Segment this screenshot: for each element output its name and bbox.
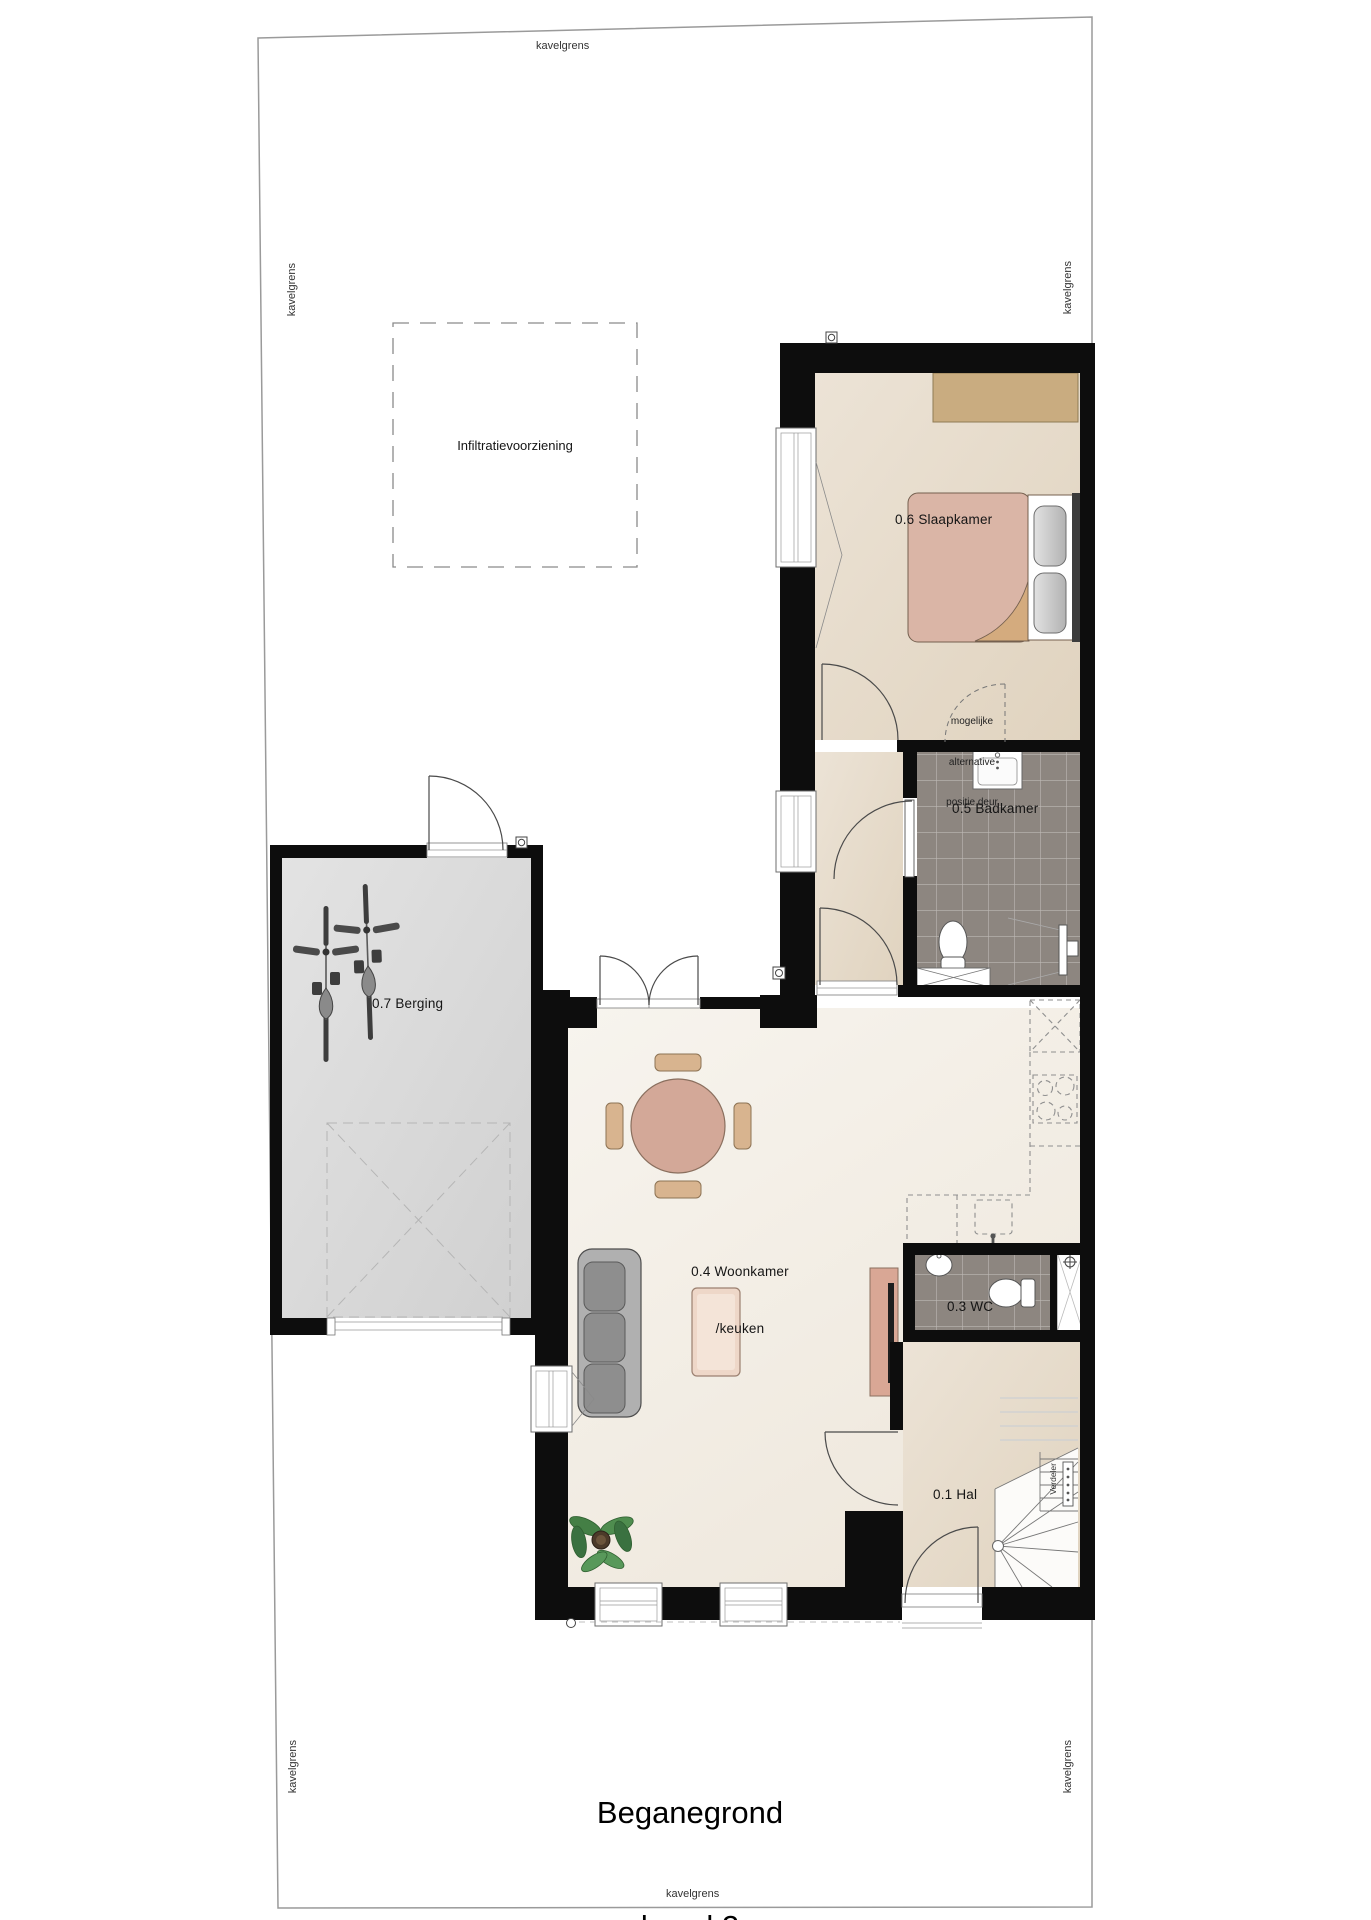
- rainwater-pipe-icon: [516, 837, 527, 848]
- living-window-west: [531, 1366, 572, 1432]
- sofa: [578, 1249, 641, 1417]
- dining-chair: [734, 1103, 751, 1149]
- boundary-label-right-bottom: kavelgrens: [1062, 1740, 1074, 1793]
- bedroom-window: [776, 428, 816, 567]
- living-window-south-1: [595, 1583, 662, 1626]
- alt-door-note-line3: positie deur: [922, 796, 1022, 810]
- alt-door-note-line1: mogelijke: [922, 715, 1022, 729]
- boundary-label-left-top: kavelgrens: [286, 263, 298, 316]
- floorplan-drawing: [0, 0, 1371, 1920]
- room-label-living-line1: 0.4 Woonkamer: [640, 1262, 840, 1281]
- corridor-floor: [815, 752, 903, 985]
- boundary-label-right-top: kavelgrens: [1062, 261, 1074, 314]
- dining-table: [631, 1079, 725, 1173]
- corridor-window: [776, 791, 816, 872]
- front-door-sill: [902, 1594, 982, 1607]
- bathroom-radiator: [917, 968, 990, 987]
- rainwater-pipe-icon: [826, 332, 837, 343]
- heating-manifold-icon: [1063, 1462, 1073, 1506]
- rainwater-pipe-icon: [567, 1619, 576, 1628]
- living-window-south-2: [720, 1583, 787, 1626]
- rainwater-pipe-icon: [773, 967, 785, 979]
- boundary-label-top: kavelgrens: [536, 40, 589, 52]
- wc-toilet: [989, 1279, 1023, 1307]
- patio-double-doors: [600, 956, 698, 1005]
- alt-door-note: mogelijke alternative positie deur: [922, 688, 1022, 837]
- room-label-bedroom: 0.6 Slaapkamer: [895, 512, 992, 527]
- floorplan-sheet: kavelgrens kavelgrens kavelgrens kavelgr…: [0, 0, 1371, 1920]
- sheet-title: Beganegrond kavel 2: [515, 1718, 865, 1920]
- dining-chair: [606, 1103, 623, 1149]
- storage-door: [429, 776, 503, 850]
- room-label-hall: 0.1 Hal: [933, 1487, 977, 1502]
- stair-newel: [993, 1541, 1004, 1552]
- storage-floor: [282, 858, 531, 1318]
- room-label-living-line2: /keuken: [640, 1319, 840, 1338]
- wardrobe: [933, 373, 1078, 422]
- duct-shaft: [1057, 1252, 1083, 1332]
- boundary-label-left-bottom: kavelgrens: [287, 1740, 299, 1793]
- manifold-label: Verdeler: [1048, 1463, 1058, 1495]
- alt-door-note-line2: alternative: [922, 756, 1022, 770]
- wc-sink: [926, 1254, 952, 1276]
- room-label-storage: 0.7 Berging: [372, 996, 443, 1011]
- storage-garage-opening: [327, 1318, 510, 1335]
- sheet-title-line2: kavel 2: [515, 1908, 865, 1920]
- sheet-title-line1: Beganegrond: [515, 1794, 865, 1832]
- room-label-wc: 0.3 WC: [947, 1299, 993, 1314]
- dining-chair: [655, 1054, 701, 1071]
- dining-chair: [655, 1181, 701, 1198]
- infiltration-label: Infiltratievoorziening: [393, 323, 637, 567]
- staircase: [993, 1398, 1079, 1587]
- room-label-living: 0.4 Woonkamer /keuken: [640, 1224, 840, 1376]
